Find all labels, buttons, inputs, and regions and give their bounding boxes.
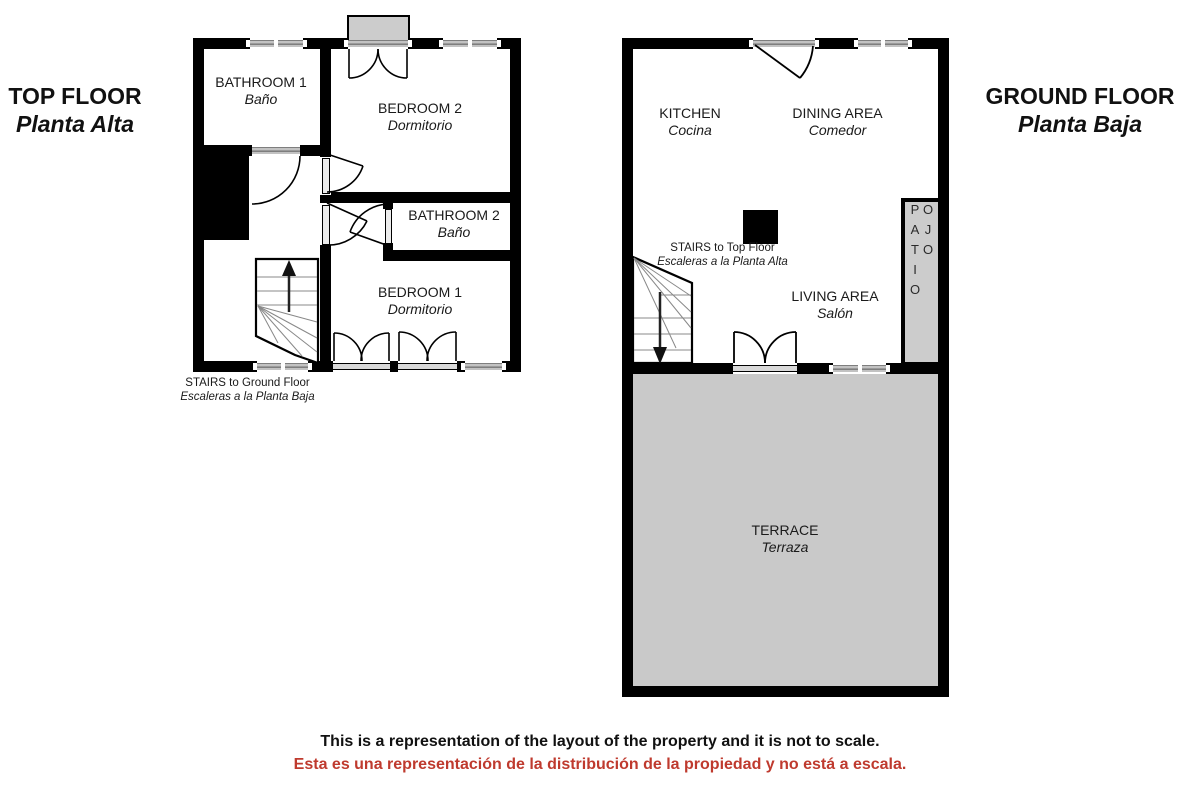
plan-linework (0, 0, 1200, 800)
disclaimer-en: This is a representation of the layout o… (0, 733, 1200, 751)
door-leaf-line (350, 232, 389, 246)
disclaimer-es: Esta es una representación de la distrib… (0, 756, 1200, 774)
door-swing-arc (252, 156, 300, 204)
door-swing-arc (327, 221, 367, 245)
door-swing-arc (427, 332, 456, 361)
disclaimer: This is a representation of the layout o… (0, 733, 1200, 774)
door-leaf-line (327, 203, 367, 221)
door-leaf-line (755, 45, 800, 78)
door-swing-arc (734, 332, 765, 363)
door-swing-arc (327, 166, 363, 192)
door-swing-arc (361, 333, 389, 361)
floorplan-canvas: TOP FLOOR Planta Alta GROUND FLOOR Plant… (0, 0, 1200, 800)
door-swing-arc (334, 333, 362, 361)
door-swing-arc (765, 332, 796, 363)
door-leaf-line (327, 154, 363, 166)
door-swing-arc (350, 204, 389, 232)
door-swing-arc (378, 49, 407, 78)
stairs-ground-floor (633, 257, 692, 364)
door-swing-arc (399, 332, 428, 361)
stairs-top-floor (256, 259, 318, 363)
door-swing-arc (349, 49, 378, 78)
door-swing-arc (800, 46, 813, 78)
